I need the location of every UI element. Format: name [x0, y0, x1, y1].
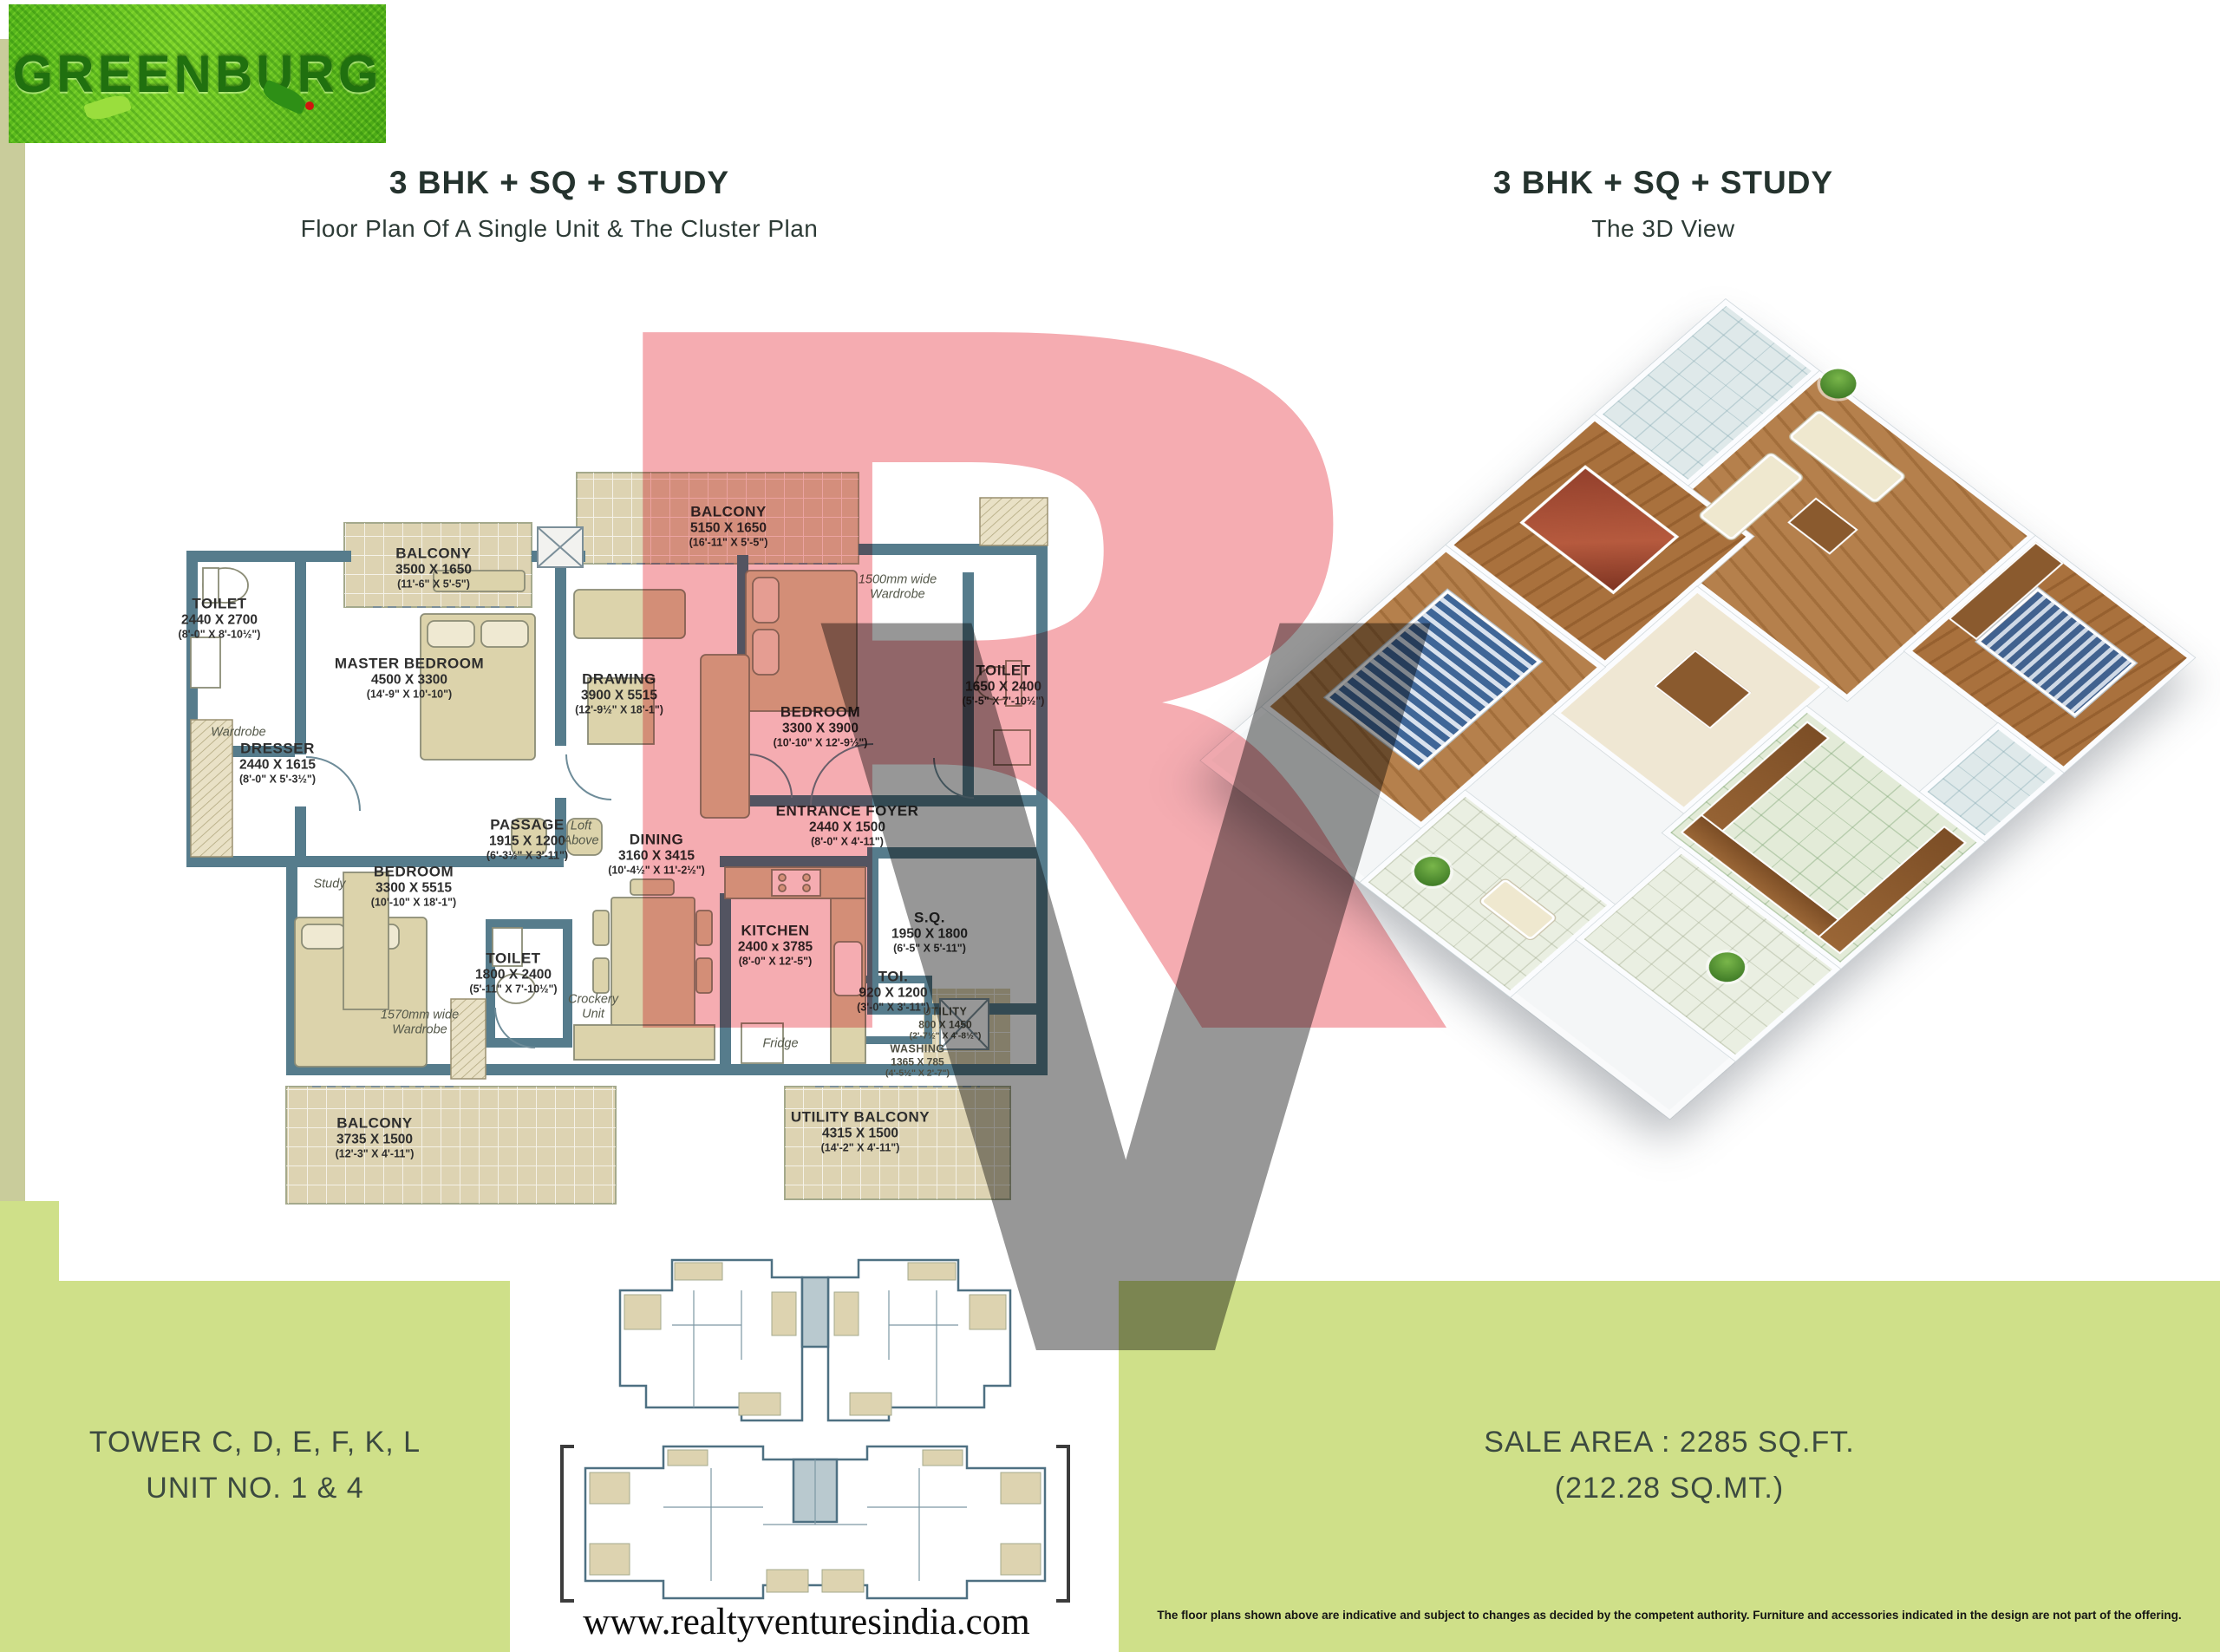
balconies: [286, 473, 1010, 1204]
left-section-header: 3 BHK + SQ + STUDY Floor Plan Of A Singl…: [301, 165, 819, 243]
cluster-plan: [555, 1238, 1075, 1611]
left-edge-strip: [0, 39, 25, 1201]
right-subtitle: The 3D View: [1493, 215, 1833, 243]
sale-area-line: SALE AREA : 2285 SQ.FT.: [1119, 1420, 2220, 1466]
left-title: 3 BHK + SQ + STUDY: [301, 165, 819, 201]
sale-area-metric-line: (212.28 SQ.MT.): [1119, 1466, 2220, 1512]
three-d-view: [1200, 299, 2195, 1119]
furniture: [191, 568, 1030, 1067]
disclaimer-text: The floor plans shown above are indicati…: [1119, 1609, 2220, 1622]
page: GREENBURG 3 BHK + SQ + STUDY Floor Plan …: [0, 0, 2220, 1652]
ladybug-icon: [305, 101, 314, 110]
left-edge-strip-green: [0, 1201, 59, 1288]
floor-plan-drawing: [173, 460, 1049, 1214]
right-title: 3 BHK + SQ + STUDY: [1493, 165, 1833, 201]
tower-line: TOWER C, D, E, F, K, L: [0, 1420, 510, 1466]
logo-text: GREENBURG: [12, 44, 382, 104]
left-subtitle: Floor Plan Of A Single Unit & The Cluste…: [301, 215, 819, 243]
sale-area-panel: SALE AREA : 2285 SQ.FT. (212.28 SQ.MT.) …: [1119, 1281, 2220, 1652]
greenburg-logo: GREENBURG: [9, 4, 386, 143]
unit-line: UNIT NO. 1 & 4: [0, 1466, 510, 1512]
right-section-header: 3 BHK + SQ + STUDY The 3D View: [1493, 165, 1833, 243]
tower-info-panel: TOWER C, D, E, F, K, L UNIT NO. 1 & 4: [0, 1281, 510, 1652]
website-url: www.realtyventuresindia.com: [583, 1601, 1029, 1643]
